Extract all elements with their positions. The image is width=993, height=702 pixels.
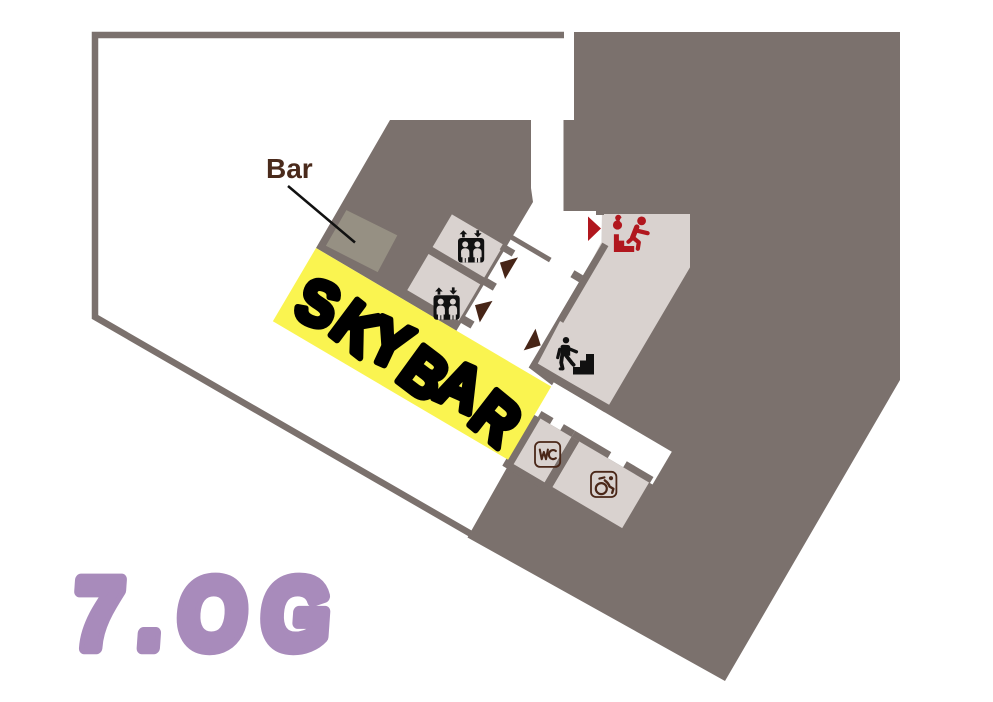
svg-text:Bar: Bar: [266, 153, 313, 184]
svg-text:7.OG: 7.OG: [71, 558, 350, 669]
